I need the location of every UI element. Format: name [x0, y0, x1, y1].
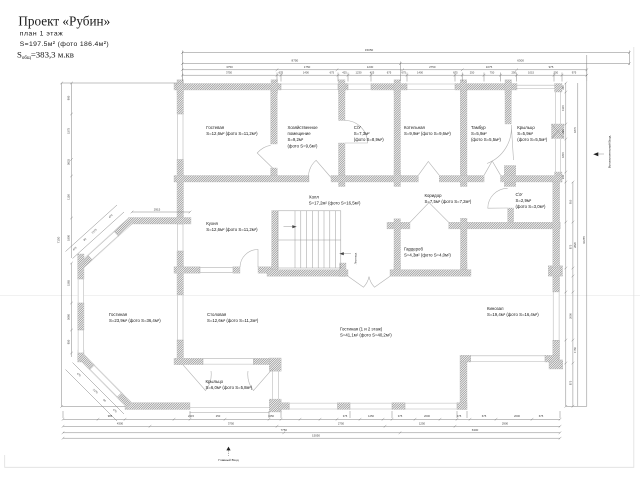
svg-text:Вспомогательный Вход: Вспомогательный Вход: [608, 136, 612, 169]
svg-text:230: 230: [561, 174, 565, 179]
svg-text:7150: 7150: [57, 236, 61, 243]
svg-text:(фото S=3,0м²): (фото S=3,0м²): [516, 204, 546, 209]
svg-text:975: 975: [572, 70, 577, 74]
svg-text:1075: 1075: [486, 65, 493, 69]
svg-text:675: 675: [453, 70, 458, 74]
svg-text:2750: 2750: [338, 421, 345, 425]
svg-text:2900: 2900: [502, 421, 509, 425]
svg-text:помещение: помещение: [288, 131, 312, 136]
svg-text:2000: 2000: [424, 414, 430, 418]
svg-text:3750: 3750: [226, 70, 232, 74]
svg-text:Гардероб: Гардероб: [404, 247, 423, 252]
svg-text:S=5,9м²: S=5,9м²: [517, 131, 533, 136]
svg-text:Столовая: Столовая: [207, 312, 227, 317]
svg-text:план 1 этаж: план 1 этаж: [20, 30, 63, 37]
svg-text:675: 675: [330, 70, 335, 74]
svg-text:Лестница: Лестница: [354, 252, 358, 264]
svg-text:1250: 1250: [419, 421, 426, 425]
svg-text:985: 985: [108, 414, 113, 418]
svg-text:1750: 1750: [573, 347, 577, 353]
svg-text:S=4,3м² (фото S=4,0м²): S=4,3м² (фото S=4,0м²): [404, 253, 451, 258]
svg-text:S=2,9м²: S=2,9м²: [516, 198, 532, 203]
svg-text:Гостиная: Гостиная: [109, 312, 128, 317]
svg-text:2000: 2000: [568, 313, 572, 319]
svg-text:910: 910: [568, 199, 572, 204]
svg-text:5060: 5060: [66, 314, 70, 320]
svg-text:2415: 2415: [188, 414, 194, 418]
svg-text:1250: 1250: [368, 414, 374, 418]
svg-text:2750: 2750: [429, 65, 436, 69]
svg-text:(фото S=8,9м²): (фото S=8,9м²): [354, 137, 384, 142]
svg-text:Крыльцо: Крыльцо: [517, 125, 535, 130]
svg-text:425: 425: [342, 70, 347, 74]
svg-text:Тамбур: Тамбур: [471, 125, 486, 130]
svg-text:675: 675: [401, 70, 406, 74]
svg-text:250: 250: [470, 70, 475, 74]
svg-text:375: 375: [343, 414, 348, 418]
svg-text:1400: 1400: [303, 70, 309, 74]
svg-text:Главный Вход: Главный Вход: [218, 458, 238, 462]
svg-text:S=5,9м²: S=5,9м²: [471, 131, 487, 136]
svg-text:1800: 1800: [66, 235, 70, 241]
svg-text:4300: 4300: [117, 421, 124, 425]
svg-text:425: 425: [370, 70, 375, 74]
svg-text:900: 900: [66, 95, 70, 100]
svg-text:С\У: С\У: [354, 125, 361, 130]
svg-text:5625: 5625: [66, 159, 70, 165]
svg-text:8750: 8750: [292, 59, 299, 63]
svg-text:675: 675: [387, 70, 392, 74]
svg-text:950: 950: [66, 339, 70, 344]
svg-text:S=197.5м² (фото 186.4м²): S=197.5м² (фото 186.4м²): [20, 41, 109, 48]
svg-text:1815: 1815: [561, 152, 565, 158]
svg-text:Проект «Рубин»: Проект «Рубин»: [18, 13, 110, 28]
svg-text:375: 375: [457, 414, 462, 418]
svg-text:Хозяйственное: Хозяйственное: [288, 125, 319, 130]
svg-text:1400: 1400: [417, 70, 423, 74]
svg-text:S=6,0м² (фото S=5,8м²): S=6,0м² (фото S=5,8м²): [206, 385, 253, 390]
svg-text:S=12,6м² (фото S=11,2м²): S=12,6м² (фото S=11,2м²): [206, 131, 258, 136]
svg-text:3750: 3750: [226, 65, 233, 69]
svg-text:1015: 1015: [528, 70, 534, 74]
svg-text:675: 675: [482, 414, 487, 418]
svg-text:S=7,3м²: S=7,3м²: [354, 131, 370, 136]
svg-text:3750: 3750: [228, 421, 235, 425]
svg-text:1750: 1750: [304, 65, 311, 69]
svg-text:375: 375: [398, 414, 403, 418]
svg-text:875: 875: [568, 380, 572, 385]
svg-text:Гостиная (1 и 2 этаж): Гостиная (1 и 2 этаж): [340, 327, 383, 332]
svg-text:S=9,2м²: S=9,2м²: [288, 137, 304, 142]
svg-text:975: 975: [549, 65, 554, 69]
svg-text:10255: 10255: [582, 236, 586, 244]
svg-text:15050: 15050: [365, 48, 374, 52]
svg-text:(фото S=5,5м²): (фото S=5,5м²): [471, 137, 501, 142]
svg-text:(фото S=5,5м²): (фото S=5,5м²): [517, 137, 547, 142]
svg-text:S=12,6м² (фото S=11,2м²): S=12,6м² (фото S=11,2м²): [207, 318, 259, 323]
svg-text:675: 675: [539, 414, 544, 418]
svg-text:S=7,5м² (фото S=7,2м²): S=7,5м² (фото S=7,2м²): [425, 199, 472, 204]
svg-text:S=12,6м² (фото S=11,2м²): S=12,6м² (фото S=11,2м²): [206, 227, 258, 232]
svg-text:Гостевая: Гостевая: [206, 125, 225, 130]
svg-text:Кухня: Кухня: [206, 221, 218, 226]
svg-text:875: 875: [568, 244, 572, 249]
svg-text:2820: 2820: [573, 242, 577, 248]
svg-text:1575: 1575: [66, 128, 70, 134]
svg-text:S=23,9м² (фото S=36,4м²): S=23,9м² (фото S=36,4м²): [109, 318, 161, 323]
svg-text:S=41,1м² (фото S=40,2м²): S=41,1м² (фото S=40,2м²): [340, 333, 392, 338]
svg-text:1315: 1315: [561, 105, 565, 111]
svg-text:750: 750: [490, 70, 495, 74]
svg-text:С\У: С\У: [516, 192, 523, 197]
svg-text:Холл: Холл: [309, 195, 320, 200]
svg-text:S=19,4м² (фото S=16,4м²): S=19,4м² (фото S=16,4м²): [487, 312, 539, 317]
svg-text:6300: 6300: [517, 59, 524, 63]
svg-text:1565: 1565: [66, 280, 70, 286]
svg-text:6300: 6300: [472, 428, 479, 432]
svg-text:1150: 1150: [66, 194, 70, 200]
svg-text:1230: 1230: [367, 65, 374, 69]
svg-text:Крыльцо: Крыльцо: [206, 379, 224, 384]
svg-text:2915: 2915: [154, 207, 161, 211]
svg-text:250: 250: [512, 70, 517, 74]
svg-text:(фото S=9,6м²): (фото S=9,6м²): [288, 143, 318, 148]
svg-text:S=17,2м² (фото S=16,5м²): S=17,2м² (фото S=16,5м²): [309, 201, 361, 206]
svg-text:Коридор: Коридор: [425, 193, 443, 198]
svg-text:250: 250: [216, 414, 221, 418]
svg-text:250: 250: [554, 70, 559, 74]
svg-text:7750: 7750: [281, 428, 288, 432]
svg-text:Кинозал: Кинозал: [487, 306, 504, 311]
svg-text:S=9,9м² (фото S=9,6м²): S=9,9м² (фото S=9,6м²): [404, 131, 451, 136]
svg-text:Котельная: Котельная: [404, 125, 425, 130]
svg-text:2000: 2000: [514, 414, 520, 418]
svg-text:230: 230: [561, 129, 565, 134]
svg-text:1875: 1875: [573, 127, 577, 133]
svg-text:1230: 1230: [356, 70, 362, 74]
svg-text:15050: 15050: [312, 433, 320, 437]
svg-text:260: 260: [561, 85, 565, 90]
